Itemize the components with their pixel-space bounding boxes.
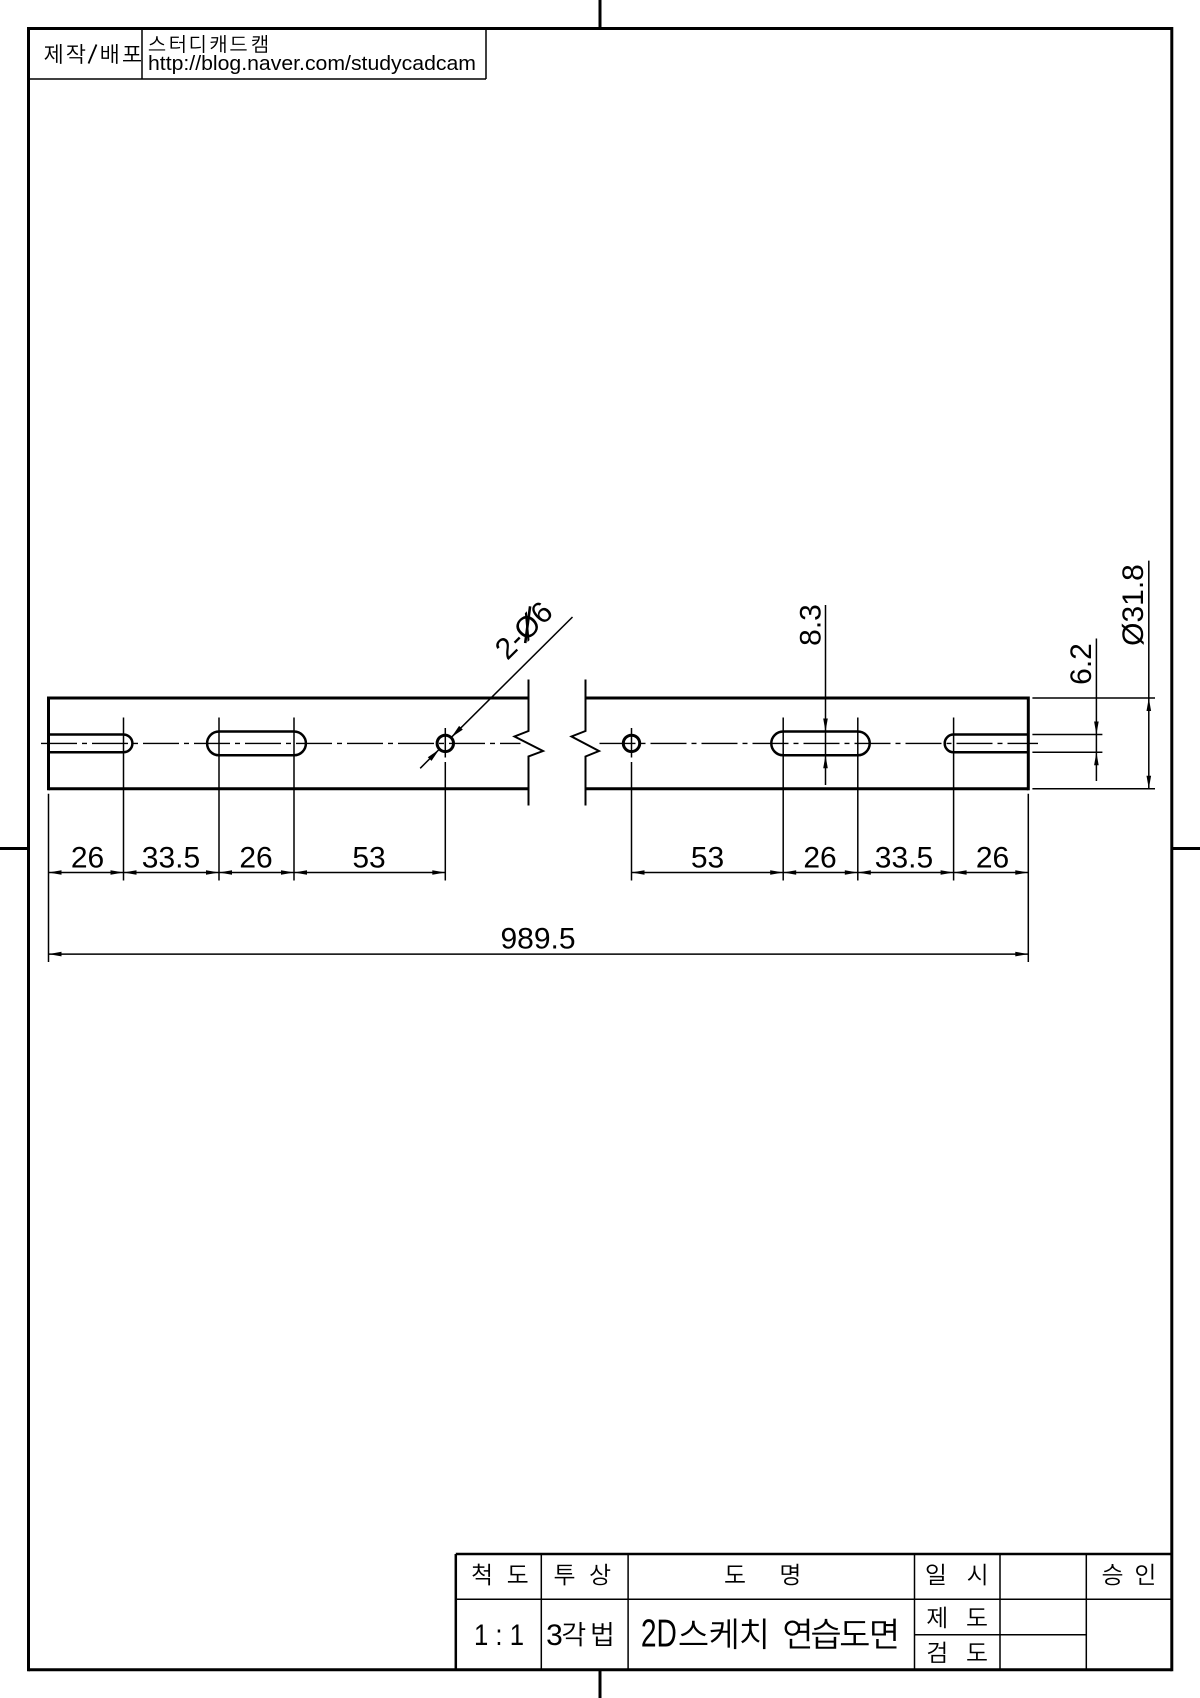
svg-text:53: 53 — [352, 842, 385, 875]
svg-text:2D: 2D — [641, 1613, 677, 1656]
svg-text:26: 26 — [976, 842, 1009, 875]
svg-text:1 : 1: 1 : 1 — [474, 1619, 524, 1652]
svg-text:Ø31.8: Ø31.8 — [1117, 564, 1150, 646]
svg-text:3: 3 — [546, 1619, 563, 1652]
svg-text:26: 26 — [71, 842, 104, 875]
svg-text:6.2: 6.2 — [1065, 643, 1098, 685]
svg-text:989.5: 989.5 — [500, 923, 575, 956]
svg-text:33.5: 33.5 — [875, 842, 933, 875]
svg-text:26: 26 — [803, 842, 836, 875]
svg-text:26: 26 — [239, 842, 272, 875]
svg-text:http://blog.naver.com/studycad: http://blog.naver.com/studycadcam — [148, 53, 476, 75]
svg-text:53: 53 — [691, 842, 724, 875]
svg-text:8.3: 8.3 — [795, 604, 828, 646]
svg-text:33.5: 33.5 — [142, 842, 200, 875]
